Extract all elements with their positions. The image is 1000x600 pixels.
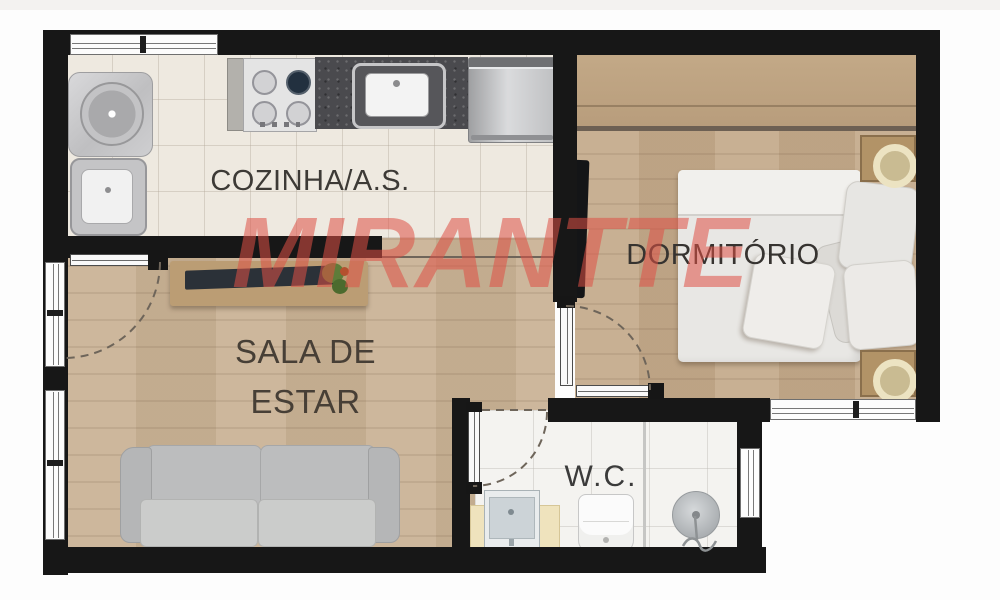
- bedroom-label: DORMITÓRIO: [598, 239, 848, 272]
- door-swing-arcs: [0, 0, 1000, 600]
- shower-hose: [683, 516, 716, 551]
- living-room-label-line1: SALA DE: [198, 327, 413, 377]
- entry-door-arc: [64, 262, 160, 358]
- bedroom-door-arc: [566, 306, 650, 390]
- kitchen-label: COZINHA/A.S.: [165, 165, 455, 198]
- bathroom-door-arc: [473, 412, 547, 486]
- floor-plan: COZINHA/A.S. DORMITÓRIO SALA DE ESTAR W.…: [0, 0, 1000, 600]
- living-room-label-line2: ESTAR: [198, 377, 413, 427]
- living-room-label: SALA DE ESTAR: [198, 327, 413, 427]
- bathroom-label: W.C.: [556, 460, 646, 494]
